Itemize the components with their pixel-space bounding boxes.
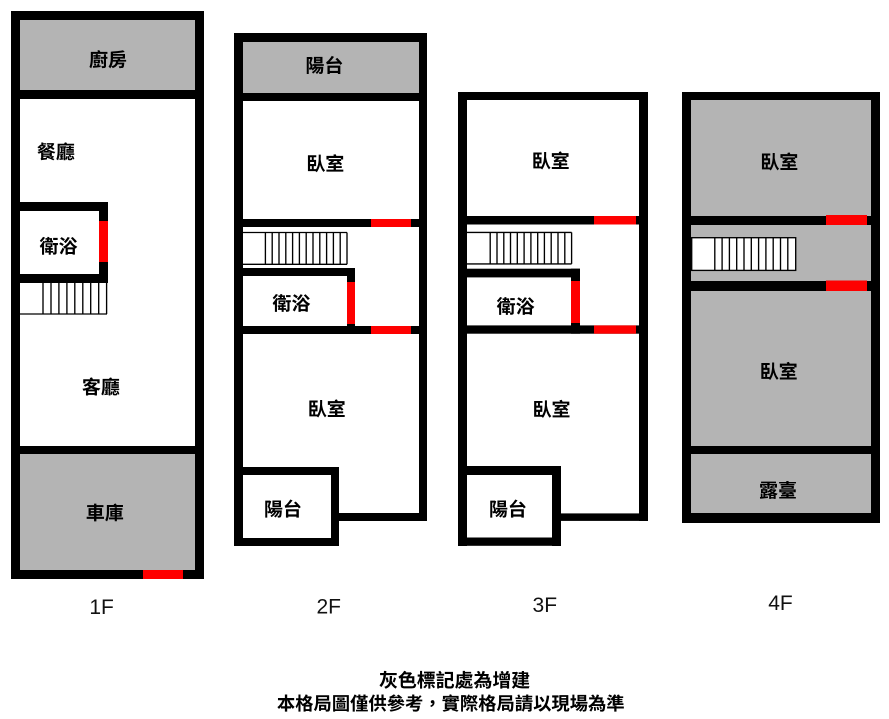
svg-text:3F: 3F [533,594,558,617]
svg-text:4F: 4F [768,592,793,615]
svg-text:1F: 1F [89,596,114,619]
svg-text:2F: 2F [316,596,341,619]
